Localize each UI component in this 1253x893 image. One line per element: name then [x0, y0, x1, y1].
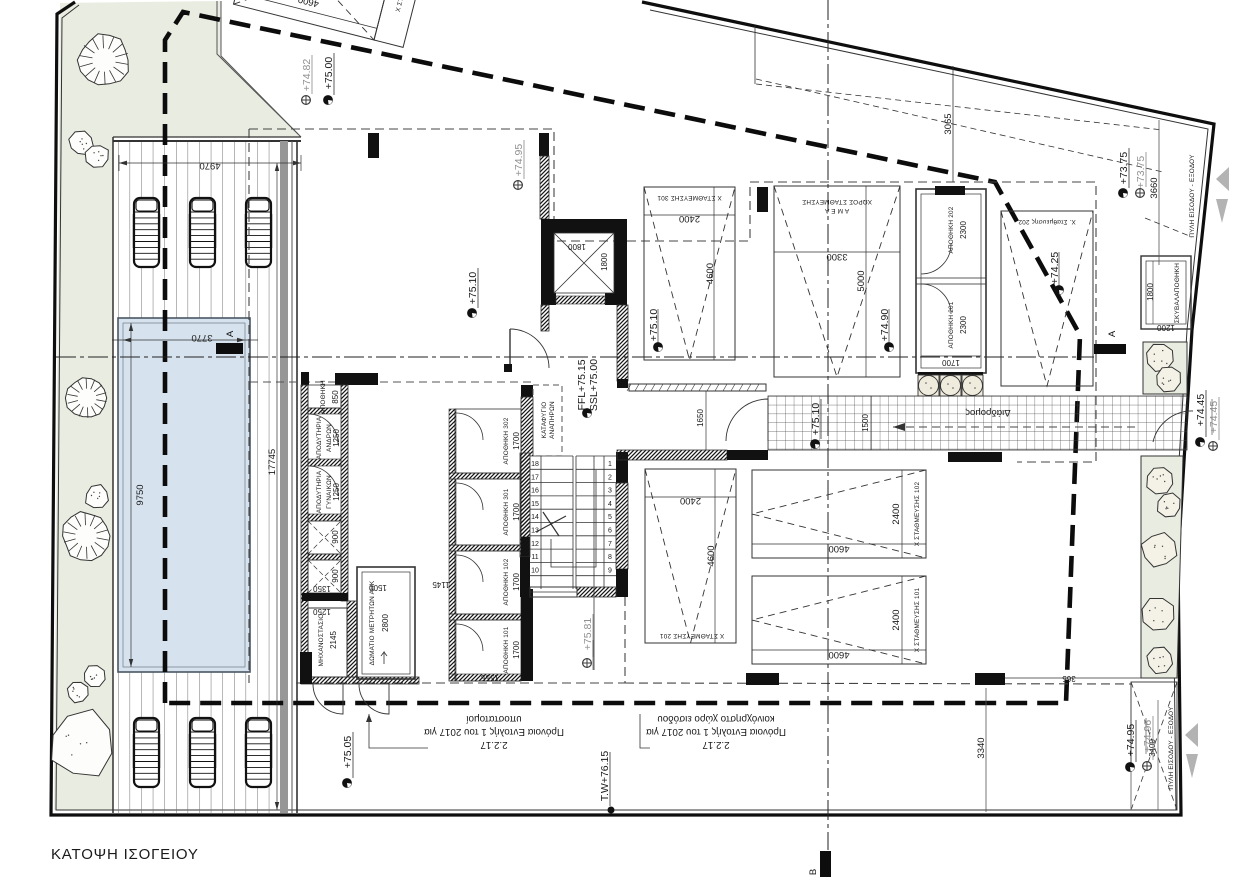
svg-text:1555: 1555 — [481, 673, 499, 682]
svg-text:18: 18 — [531, 461, 539, 468]
svg-text:Πρόνοια Εντολής 1 του 2017 για: Πρόνοια Εντολής 1 του 2017 για — [646, 726, 786, 737]
svg-text:15: 15 — [531, 501, 539, 508]
svg-text:ΑΠΟΘΗΚΗ 101: ΑΠΟΘΗΚΗ 101 — [503, 626, 510, 673]
svg-text:1650: 1650 — [696, 409, 705, 427]
svg-text:+74.95: +74.95 — [1125, 724, 1137, 757]
svg-text:2300: 2300 — [959, 221, 968, 239]
svg-text:Χ ΣΤΑΘΜΕΥΣΗΣ 101: Χ ΣΤΑΘΜΕΥΣΗΣ 101 — [914, 588, 921, 653]
svg-text:2145: 2145 — [329, 631, 338, 649]
svg-text:850: 850 — [331, 390, 340, 404]
svg-text:+74.45: +74.45 — [1195, 394, 1207, 427]
svg-text:3065: 3065 — [943, 113, 954, 134]
svg-text:2400: 2400 — [680, 495, 701, 506]
svg-text:Χ. Σταθμευσης 202: Χ. Σταθμευσης 202 — [1018, 218, 1076, 225]
svg-text:ΣΚΥΒΑΛΑΠΟΘΗΚΗ: ΣΚΥΒΑΛΑΠΟΘΗΚΗ — [1174, 263, 1181, 323]
svg-text:4600: 4600 — [828, 649, 849, 660]
svg-text:2300: 2300 — [959, 316, 968, 334]
svg-text:SSL+75.00: SSL+75.00 — [588, 359, 600, 411]
svg-text:+74.96: +74.96 — [1142, 720, 1154, 753]
svg-text:FFL+75.15: FFL+75.15 — [576, 359, 588, 410]
svg-text:ΑΠΟΘΗΚΗ 301: ΑΠΟΘΗΚΗ 301 — [503, 488, 510, 535]
svg-text:+74.45: +74.45 — [1208, 401, 1220, 434]
svg-text:+75.81: +75.81 — [582, 618, 594, 651]
svg-text:1250: 1250 — [332, 429, 341, 447]
svg-text:9: 9 — [608, 567, 612, 574]
svg-text:5000: 5000 — [856, 270, 867, 291]
svg-text:ΑΠΟΘΗΚΗ 102: ΑΠΟΘΗΚΗ 102 — [503, 558, 510, 605]
svg-text:3770: 3770 — [191, 332, 212, 343]
svg-text:ΑΠΟΔΥΤΗΡΙΑ: ΑΠΟΔΥΤΗΡΙΑ — [316, 470, 323, 513]
svg-text:1500: 1500 — [861, 414, 870, 432]
svg-text:900: 900 — [331, 530, 340, 544]
svg-text:3300: 3300 — [826, 251, 847, 262]
svg-text:1700: 1700 — [512, 641, 521, 659]
svg-text:2.2.17: 2.2.17 — [480, 739, 507, 750]
svg-text:14: 14 — [531, 514, 539, 521]
svg-text:9750: 9750 — [135, 484, 146, 505]
svg-text:1800: 1800 — [600, 253, 609, 271]
svg-text:1800: 1800 — [1146, 283, 1155, 301]
svg-text:ΚΑΤΑΦΥΓΙΟ: ΚΑΤΑΦΥΓΙΟ — [541, 402, 548, 439]
svg-text:+73.75: +73.75 — [1118, 152, 1130, 185]
svg-text:ΑΠΟΘΗΚΗ 202: ΑΠΟΘΗΚΗ 202 — [948, 206, 955, 253]
svg-text:+75.05: +75.05 — [342, 736, 354, 769]
svg-text:17: 17 — [531, 474, 539, 481]
svg-text:ΜΗΧΑΝΟΣΤΑΣΙΟ: ΜΗΧΑΝΟΣΤΑΣΙΟ — [318, 614, 325, 667]
svg-text:10: 10 — [531, 567, 539, 574]
svg-text:17745: 17745 — [267, 449, 278, 475]
svg-text:ΑΠΟΘΗΚΗ 302: ΑΠΟΘΗΚΗ 302 — [503, 417, 510, 464]
svg-text:Πρόνοια Εντολής 1 του 2017 για: Πρόνοια Εντολής 1 του 2017 για — [424, 726, 564, 737]
svg-text:T.W+76.15: T.W+76.15 — [599, 751, 611, 802]
svg-text:ΑΝΑΠΗΡΩΝ: ΑΝΑΠΗΡΩΝ — [549, 401, 556, 439]
svg-text:ΠΥΛΗ ΕΙΣΟΔΟΥ - ΕΞΟΔΟΥ: ΠΥΛΗ ΕΙΣΟΔΟΥ - ΕΞΟΔΟΥ — [1168, 706, 1175, 790]
svg-text:B: B — [808, 869, 819, 875]
svg-text:1250: 1250 — [332, 483, 341, 501]
svg-text:7: 7 — [608, 541, 612, 548]
svg-text:1700: 1700 — [942, 358, 960, 367]
svg-text:Χ ΣΤΑΘΜΕΥΣΗΣ 201: Χ ΣΤΑΘΜΕΥΣΗΣ 201 — [660, 632, 725, 639]
svg-text:ΑΠΟΔΥΤΗΡΙΑ: ΑΠΟΔΥΤΗΡΙΑ — [316, 416, 323, 459]
svg-text:ΑΠΟΘΗΚΗ 201: ΑΠΟΘΗΚΗ 201 — [948, 301, 955, 348]
svg-text:6: 6 — [608, 528, 612, 535]
svg-text:4: 4 — [608, 501, 612, 508]
svg-text:+73.75: +73.75 — [1135, 156, 1147, 189]
svg-text:4600: 4600 — [705, 263, 716, 284]
svg-text:900: 900 — [331, 569, 340, 583]
svg-text:Χ ΣΤΑΘΜΕΥΣΗΣ 102: Χ ΣΤΑΘΜΕΥΣΗΣ 102 — [914, 482, 921, 547]
svg-text:4600: 4600 — [828, 543, 849, 554]
svg-text:1800: 1800 — [568, 242, 586, 251]
svg-text:ΧΩΡΟΣ ΣΤΑΘΜΕΥΣΗΣ: ΧΩΡΟΣ ΣΤΑΘΜΕΥΣΗΣ — [802, 198, 872, 205]
svg-text:365: 365 — [1062, 674, 1076, 683]
svg-text:+74.95: +74.95 — [513, 144, 525, 177]
svg-text:2400: 2400 — [679, 213, 700, 224]
svg-text:A: A — [225, 330, 236, 337]
svg-text:1350: 1350 — [313, 584, 331, 593]
svg-text:κοινόχρηστο χώρο εισόδου: κοινόχρηστο χώρο εισόδου — [657, 713, 774, 724]
svg-text:3340: 3340 — [976, 737, 987, 758]
svg-text:2400: 2400 — [891, 609, 902, 630]
svg-text:8: 8 — [608, 554, 612, 561]
svg-text:Χ ΣΤΑΘΜΕΥΣΗΣ 301: Χ ΣΤΑΘΜΕΥΣΗΣ 301 — [657, 194, 722, 201]
svg-text:13: 13 — [531, 528, 539, 535]
svg-text:1200: 1200 — [1157, 323, 1175, 332]
svg-text:1: 1 — [608, 461, 612, 468]
svg-text:ΠΥΛΗ ΕΙΣΟΔΟΥ - ΕΞΟΔΟΥ: ΠΥΛΗ ΕΙΣΟΔΟΥ - ΕΞΟΔΟΥ — [1189, 154, 1196, 238]
svg-text:16: 16 — [531, 488, 539, 495]
svg-text:5: 5 — [608, 514, 612, 521]
svg-text:11: 11 — [531, 554, 538, 561]
svg-text:1700: 1700 — [512, 573, 521, 591]
svg-text:υποστατομοί: υποστατομοί — [466, 713, 522, 724]
svg-text:4970: 4970 — [199, 160, 220, 171]
svg-text:A: A — [1107, 330, 1118, 337]
svg-text:+74.82: +74.82 — [301, 59, 313, 92]
svg-text:+75.00: +75.00 — [323, 57, 335, 90]
svg-text:1145: 1145 — [432, 580, 450, 589]
svg-text:+75.10: +75.10 — [810, 403, 822, 436]
svg-text:3660: 3660 — [1149, 177, 1160, 198]
svg-text:2: 2 — [608, 474, 612, 481]
svg-text:ΚΑΤΟΨΗ ΙΣΟΓΕΙΟΥ: ΚΑΤΟΨΗ ΙΣΟΓΕΙΟΥ — [51, 846, 199, 863]
svg-text:2800: 2800 — [381, 614, 390, 632]
svg-text:Α Μ Ε Α: Α Μ Ε Α — [824, 207, 849, 214]
svg-text:12: 12 — [531, 541, 539, 548]
svg-text:2.2.17: 2.2.17 — [702, 739, 729, 750]
svg-text:Διάδρομος: Διάδρομος — [965, 407, 1011, 418]
svg-text:3: 3 — [608, 488, 612, 495]
svg-text:+75.10: +75.10 — [467, 272, 479, 305]
svg-text:1700: 1700 — [512, 432, 521, 450]
svg-text:4600: 4600 — [706, 545, 717, 566]
svg-text:2400: 2400 — [891, 503, 902, 524]
svg-text:1500: 1500 — [369, 583, 387, 592]
